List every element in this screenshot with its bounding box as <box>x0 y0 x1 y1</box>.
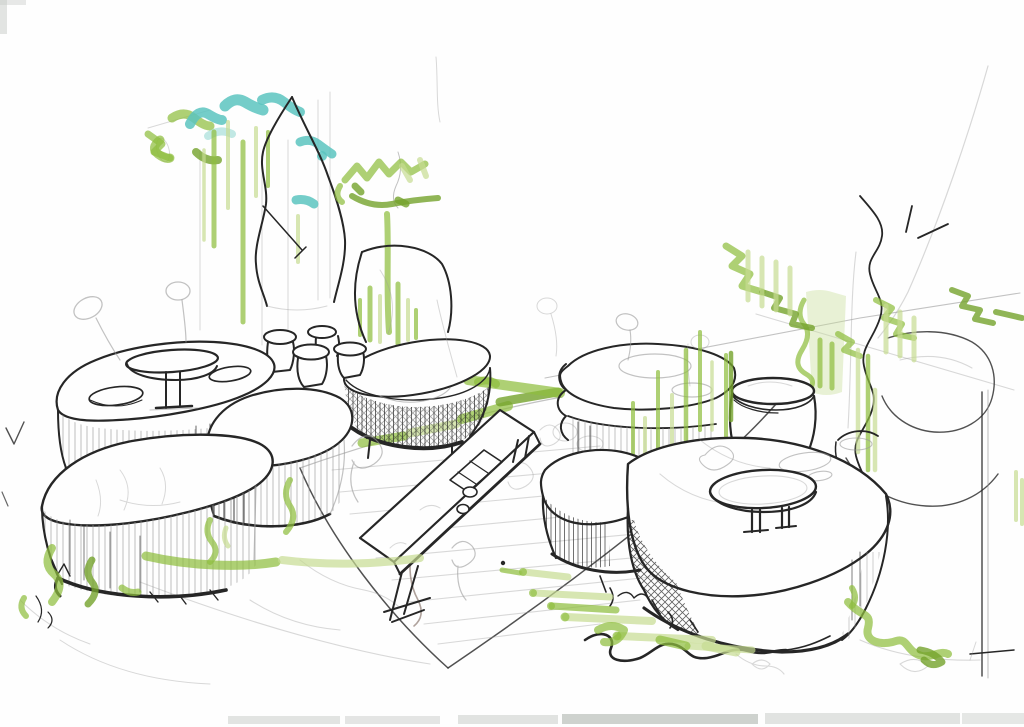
left-front-boulders <box>36 389 352 628</box>
sketch-sheet: Garden seating landscape — concept sketc… <box>0 0 1024 727</box>
right-tree <box>337 152 438 344</box>
sketch-canvas <box>0 0 1024 727</box>
